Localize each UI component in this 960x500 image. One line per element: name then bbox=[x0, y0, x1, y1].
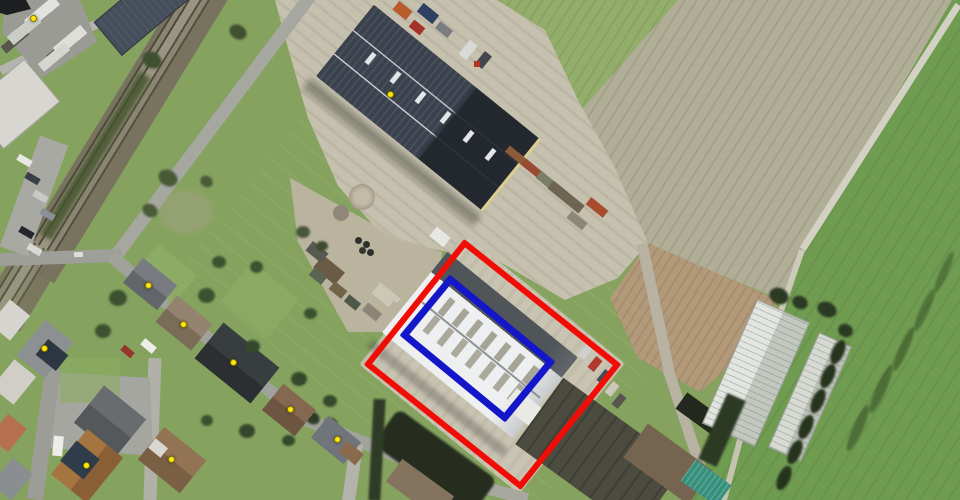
tree bbox=[245, 340, 260, 353]
van bbox=[52, 436, 64, 457]
car bbox=[120, 344, 134, 358]
tree bbox=[198, 288, 215, 303]
vehicle bbox=[474, 61, 480, 67]
tree bbox=[250, 261, 263, 273]
map-marker[interactable] bbox=[180, 321, 187, 328]
parked-car bbox=[16, 153, 32, 167]
aerial-map bbox=[0, 0, 960, 500]
gravel-pile bbox=[349, 184, 375, 210]
crossing-mark bbox=[73, 251, 82, 256]
tree bbox=[109, 290, 127, 306]
tree bbox=[316, 241, 328, 251]
tree bbox=[291, 372, 307, 386]
map-marker[interactable] bbox=[145, 282, 152, 289]
map-marker[interactable] bbox=[30, 15, 37, 22]
tree bbox=[239, 424, 255, 438]
map-marker[interactable] bbox=[287, 406, 294, 413]
map-marker[interactable] bbox=[168, 456, 175, 463]
building-west-edge bbox=[0, 59, 60, 149]
tree bbox=[282, 435, 295, 446]
gravel-pile bbox=[333, 205, 349, 221]
map-marker[interactable] bbox=[230, 359, 237, 366]
tire-pile bbox=[367, 249, 374, 256]
scrub-bush bbox=[198, 173, 215, 189]
tree bbox=[201, 415, 213, 426]
tree bbox=[296, 226, 310, 238]
building-row-west bbox=[0, 414, 27, 452]
map-marker[interactable] bbox=[387, 91, 394, 98]
tire-pile bbox=[355, 237, 362, 244]
tree bbox=[227, 21, 250, 42]
map-marker[interactable] bbox=[41, 345, 48, 352]
tree bbox=[323, 395, 337, 407]
tire-pile bbox=[359, 247, 366, 254]
map-marker[interactable] bbox=[334, 436, 341, 443]
tree bbox=[212, 256, 226, 268]
map-marker[interactable] bbox=[83, 462, 90, 469]
tree bbox=[304, 308, 317, 319]
tree bbox=[95, 324, 111, 338]
car bbox=[140, 338, 157, 354]
